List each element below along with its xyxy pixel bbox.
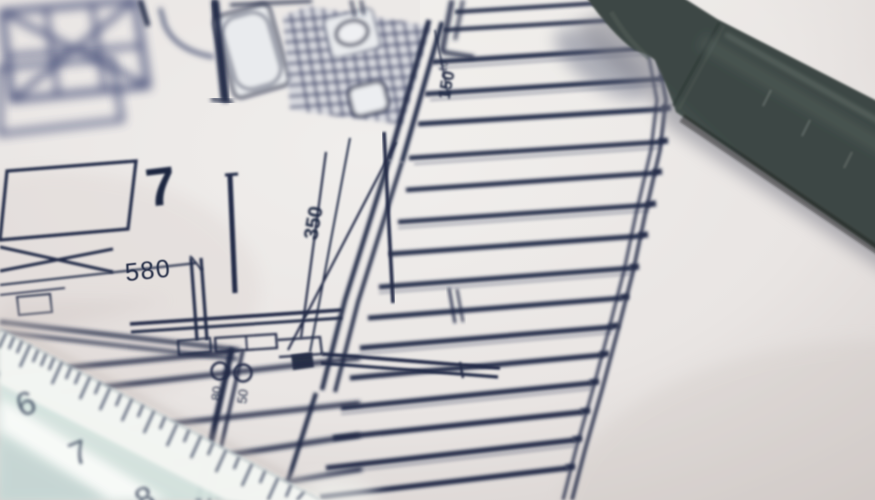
svg-text:50: 50 [234,388,251,404]
